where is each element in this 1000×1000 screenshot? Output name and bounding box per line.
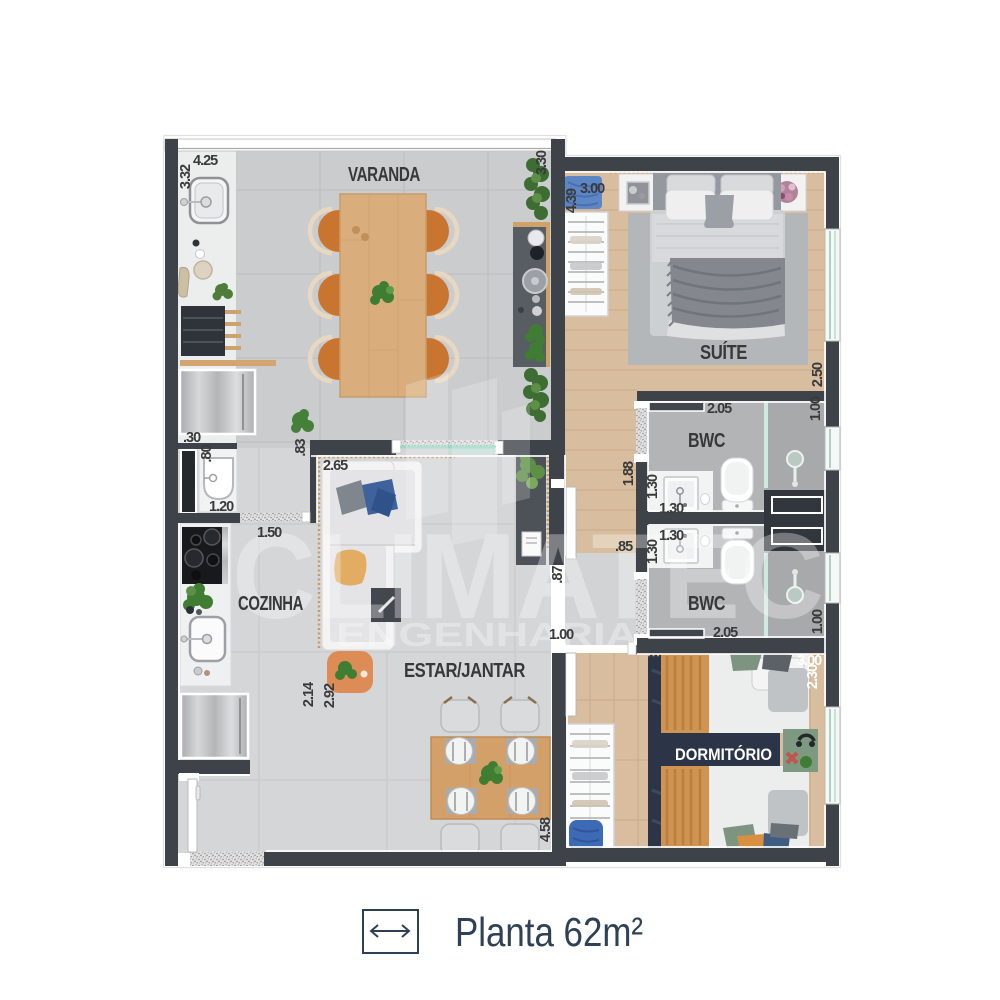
svg-text:.85: .85 [615, 539, 633, 555]
svg-text:2.14: 2.14 [301, 682, 317, 707]
svg-text:1.30: 1.30 [645, 539, 661, 564]
svg-text:ENGENHARIA: ENGENHARIA [336, 616, 638, 653]
svg-text:.87: .87 [550, 565, 566, 583]
svg-text:1.88: 1.88 [621, 461, 637, 486]
svg-text:DORMITÓRIO: DORMITÓRIO [675, 745, 772, 764]
svg-text:ESTAR/JANTAR: ESTAR/JANTAR [404, 660, 526, 682]
svg-text:1.00: 1.00 [810, 609, 826, 634]
svg-text:SUÍTE: SUÍTE [700, 341, 747, 364]
svg-text:2.50: 2.50 [810, 362, 826, 387]
svg-text:BWC: BWC [688, 430, 725, 452]
svg-text:VARANDA: VARANDA [348, 164, 420, 186]
svg-text:1.00: 1.00 [808, 396, 824, 421]
svg-text:3.32: 3.32 [178, 164, 194, 189]
svg-text:1.30: 1.30 [659, 501, 684, 517]
svg-text:2.05: 2.05 [713, 625, 738, 641]
svg-text:1.30: 1.30 [645, 474, 661, 499]
svg-text:3.30: 3.30 [534, 150, 550, 175]
svg-text:Planta 62m²: Planta 62m² [455, 909, 643, 955]
svg-text:3.00: 3.00 [580, 181, 605, 197]
svg-text:BWC: BWC [688, 593, 725, 615]
svg-text:COZINHA: COZINHA [238, 593, 303, 615]
svg-text:2.65: 2.65 [323, 458, 348, 474]
svg-text:2.92: 2.92 [322, 683, 338, 708]
svg-text:2.05: 2.05 [707, 401, 732, 417]
svg-text:.83: .83 [293, 438, 309, 456]
svg-text:4.39: 4.39 [564, 188, 580, 213]
svg-text:1.20: 1.20 [209, 499, 234, 515]
svg-text:1.30: 1.30 [659, 528, 684, 544]
svg-text:.30: .30 [183, 430, 201, 446]
svg-text:4.25: 4.25 [193, 153, 218, 169]
svg-text:2.30: 2.30 [805, 664, 821, 689]
svg-text:4.58: 4.58 [538, 817, 554, 842]
svg-text:1.00: 1.00 [549, 627, 574, 643]
svg-text:.80: .80 [199, 444, 215, 462]
svg-text:1.50: 1.50 [257, 525, 282, 541]
